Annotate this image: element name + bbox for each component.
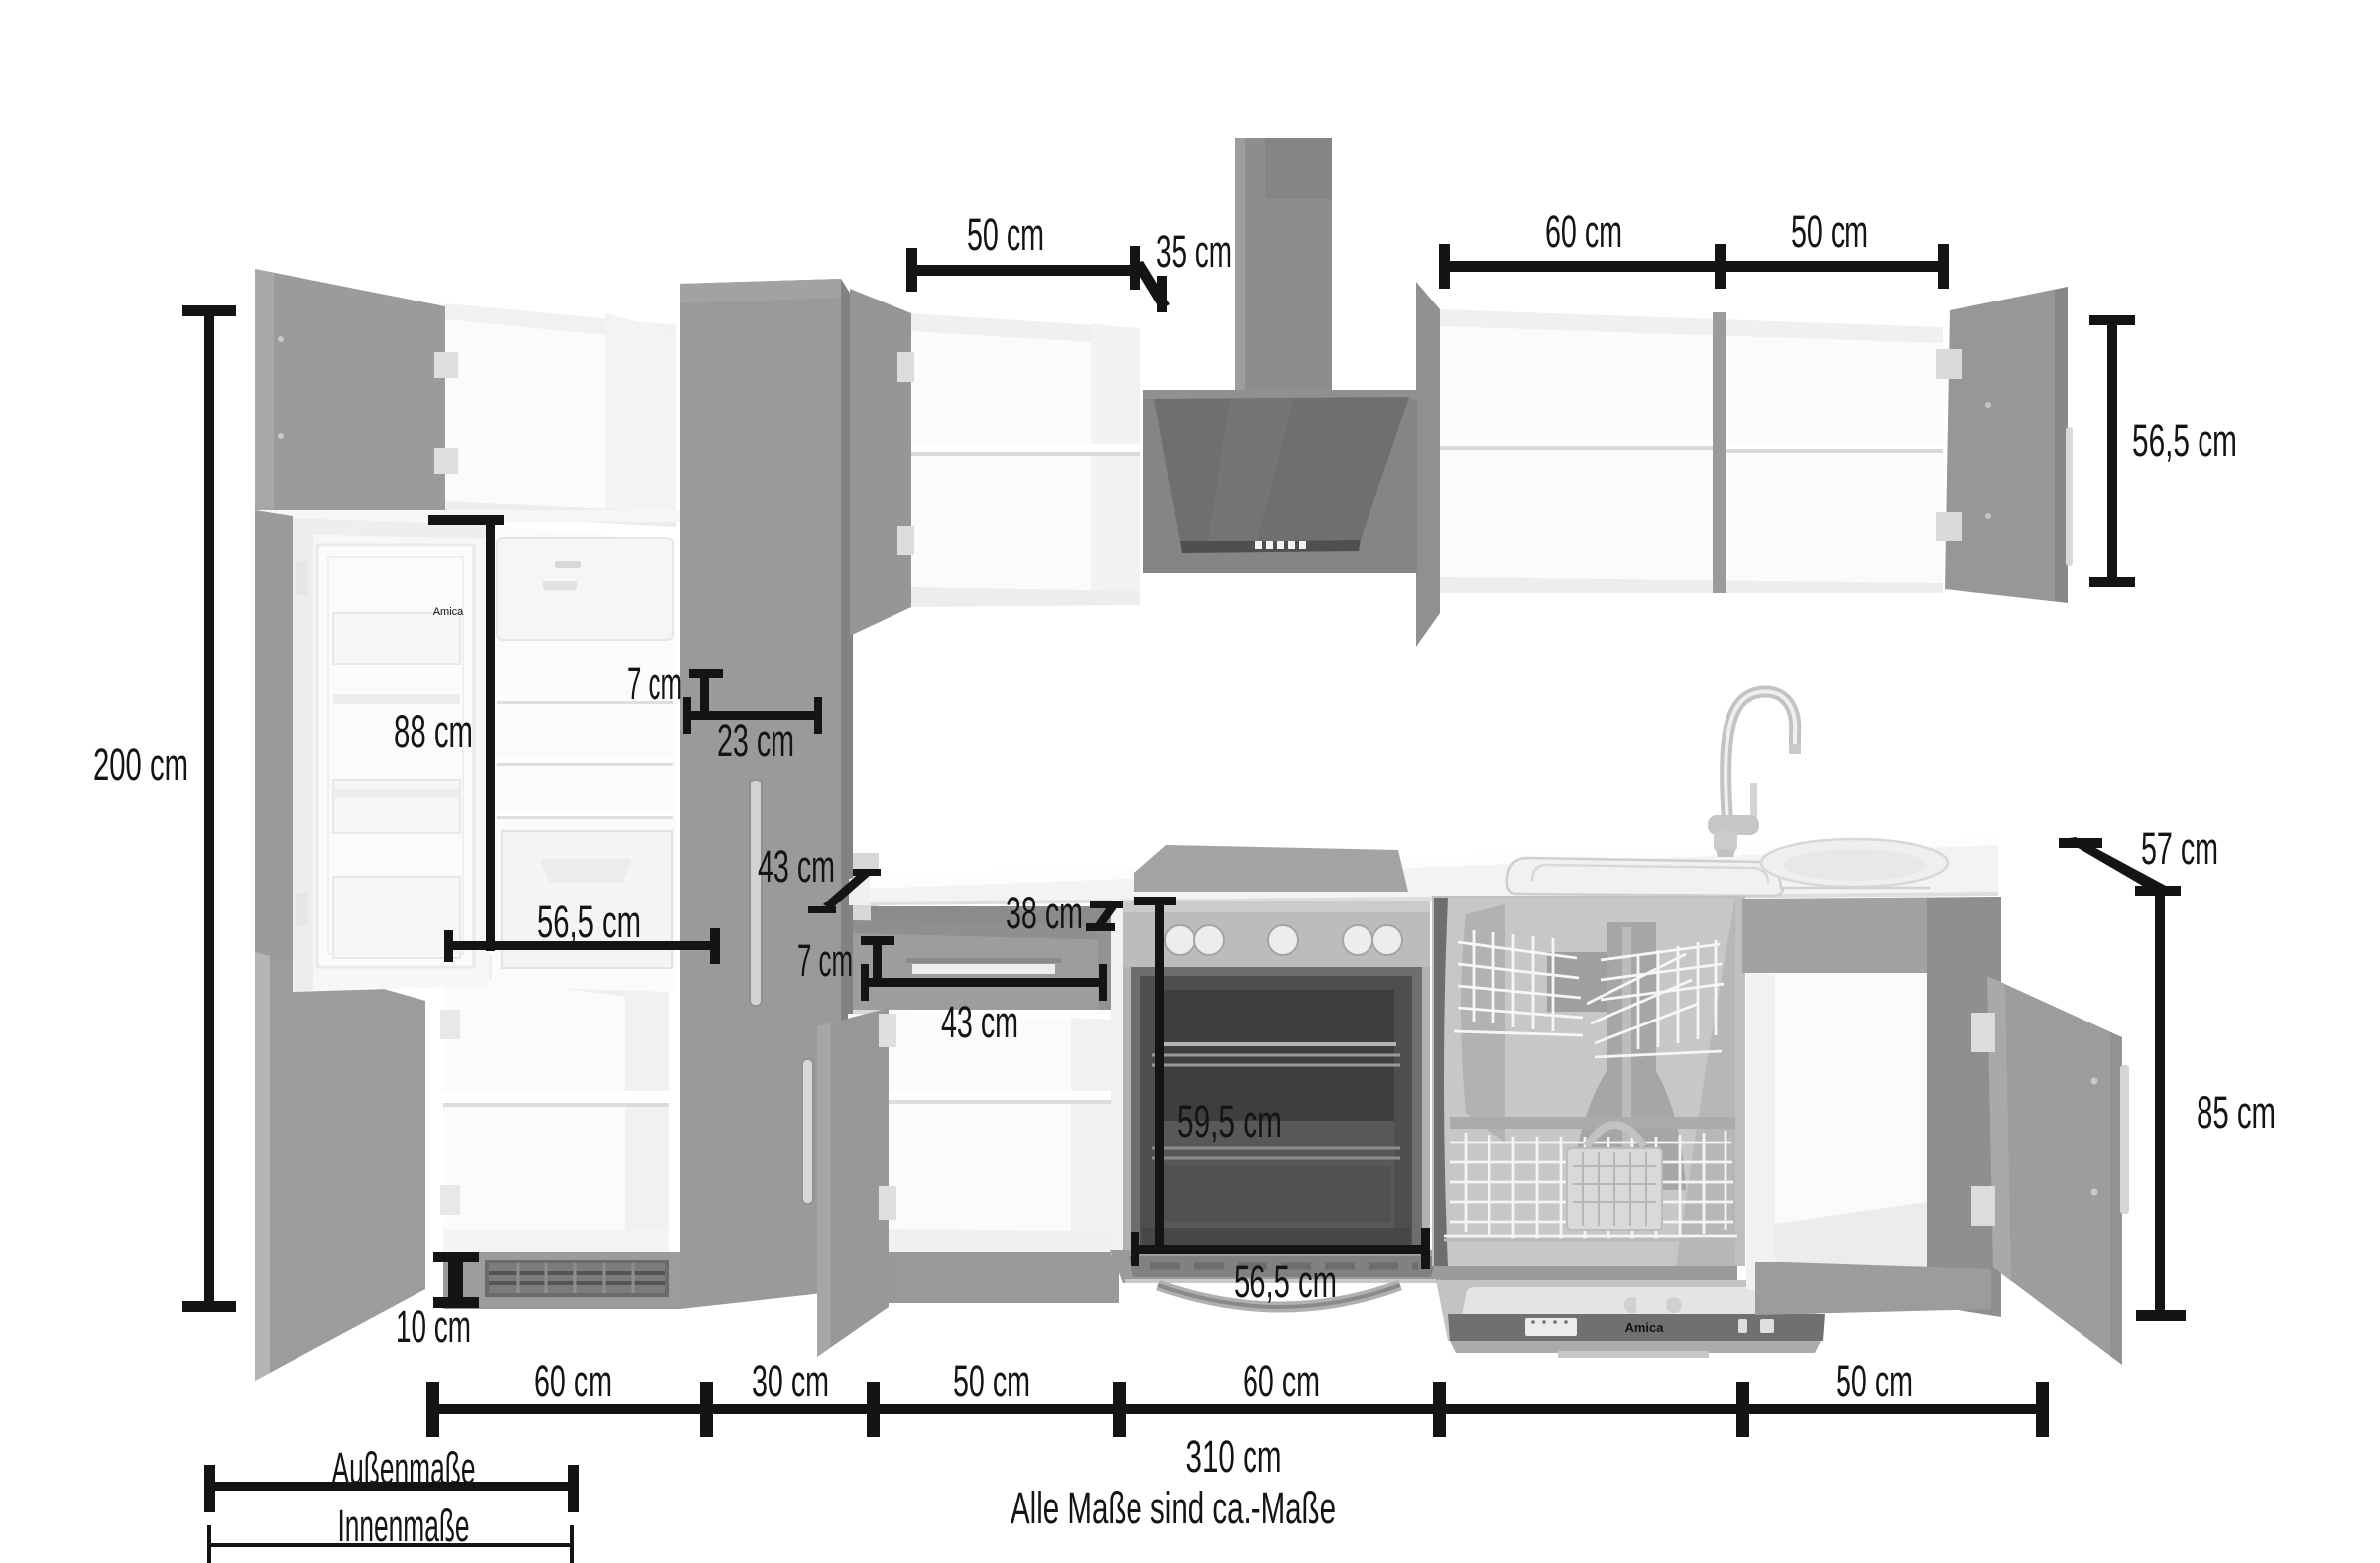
svg-text:50 cm: 50 cm [953,1356,1030,1406]
svg-text:Alle Maße sind ca.-Maße: Alle Maße sind ca.-Maße [1011,1483,1336,1533]
svg-text:50 cm: 50 cm [1836,1356,1913,1406]
svg-text:200 cm: 200 cm [93,739,188,789]
svg-text:Außenmaße: Außenmaße [332,1443,476,1494]
svg-text:10 cm: 10 cm [396,1301,471,1352]
svg-text:Amica: Amica [433,606,464,618]
svg-text:85 cm: 85 cm [2197,1087,2276,1138]
svg-text:56,5 cm: 56,5 cm [1234,1257,1337,1307]
svg-text:60 cm: 60 cm [1545,206,1622,257]
svg-text:38 cm: 38 cm [1006,888,1083,938]
svg-text:Amica: Amica [1624,1320,1664,1335]
svg-text:60 cm: 60 cm [535,1356,612,1406]
svg-text:50 cm: 50 cm [967,209,1044,260]
svg-text:Innenmaße: Innenmaße [338,1501,470,1551]
svg-text:7 cm: 7 cm [627,659,682,709]
svg-text:43 cm: 43 cm [758,841,835,892]
svg-text:23 cm: 23 cm [717,715,794,766]
svg-text:88 cm: 88 cm [394,706,473,757]
svg-text:43 cm: 43 cm [941,997,1018,1047]
svg-text:60 cm: 60 cm [1243,1356,1320,1406]
svg-text:7 cm: 7 cm [797,935,853,986]
svg-text:50 cm: 50 cm [1791,206,1868,257]
svg-text:57 cm: 57 cm [2141,823,2218,874]
svg-text:59,5 cm: 59,5 cm [1177,1096,1282,1146]
svg-text:35 cm: 35 cm [1156,226,1232,277]
svg-text:30 cm: 30 cm [752,1356,829,1406]
svg-text:310 cm: 310 cm [1186,1431,1282,1482]
svg-text:56,5 cm: 56,5 cm [2132,416,2237,466]
svg-text:56,5 cm: 56,5 cm [537,897,641,947]
